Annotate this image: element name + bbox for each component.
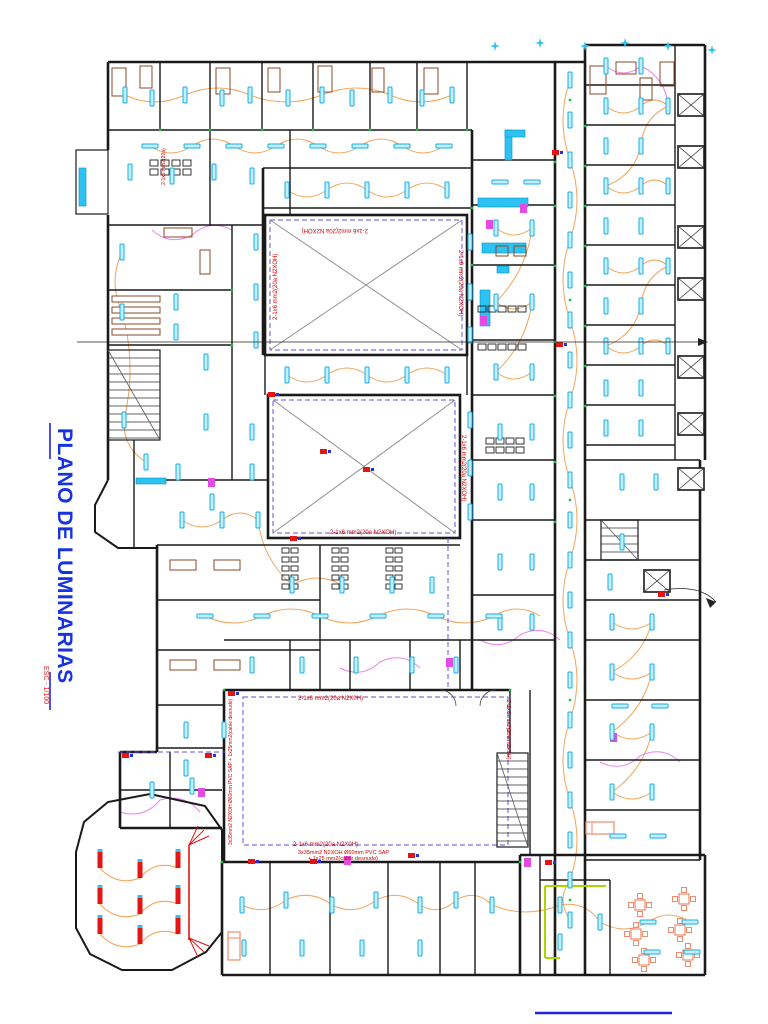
circuit-label: 2-1x6 mm2(20a) (161, 148, 167, 185)
light-fixture (454, 892, 458, 908)
switch-dot (584, 245, 586, 247)
light-fixture (530, 484, 534, 500)
ceiling-marker-diamond (707, 45, 717, 55)
shaft-box (644, 570, 670, 592)
light-fixture (290, 577, 294, 593)
switch-dot (471, 264, 473, 266)
ceiling-marker-diamond (490, 41, 500, 51)
light-fixture (598, 914, 602, 930)
switch-dot (584, 325, 586, 327)
shelf (112, 318, 160, 324)
light-fixture (180, 512, 184, 528)
circuit-label: 2-1x6 mm2(20a N2XOH) (302, 227, 368, 233)
counter-cyan (497, 266, 509, 273)
light-fixture (418, 897, 422, 913)
light-fixture (530, 554, 534, 570)
light-fixture (604, 178, 608, 194)
furniture (214, 560, 240, 570)
chair (643, 932, 648, 937)
chair (395, 584, 402, 589)
light-fixture (174, 324, 178, 340)
light-fixture (682, 920, 698, 924)
light-fixture (254, 614, 270, 618)
magenta-fixture (486, 220, 493, 229)
stage-curtain-line (189, 830, 204, 845)
ceiling-marker-diamond (535, 38, 545, 48)
switch-dot (554, 205, 556, 207)
chair (386, 548, 393, 553)
switch-dot (584, 165, 586, 167)
light-fixture (486, 614, 502, 618)
light-fixture (568, 112, 572, 128)
light-fixture (436, 144, 452, 148)
section-arrowhead (706, 598, 716, 608)
switch-dot (223, 689, 225, 691)
light-fixture (666, 338, 670, 354)
wiring-circuit-magenta (480, 630, 560, 644)
chair (386, 557, 393, 562)
light-fixture (468, 234, 472, 250)
shaft-box (678, 94, 704, 116)
circuit-label: 2-1x6 mm2(20a N2X0H) (298, 696, 363, 702)
light-fixture (170, 168, 174, 184)
counter-cyan (136, 478, 166, 484)
electrical-panel (552, 150, 563, 155)
chair (332, 575, 339, 580)
light-fixture (285, 182, 289, 198)
light-fixture (410, 657, 414, 673)
switch-dot (261, 129, 263, 131)
chair (691, 897, 696, 902)
light-fixture (666, 178, 670, 194)
switch-dot (584, 405, 586, 407)
circuit-label: 2-1x6 mm2(20a N2X0H) (293, 842, 358, 848)
plan-title: PLANO DE LUMINARIAS (53, 428, 76, 684)
light-fixture (226, 144, 242, 148)
wiring-circuit-magenta (120, 798, 200, 814)
switch-dot (509, 689, 511, 691)
light-fixture (300, 940, 304, 956)
light-fixture (530, 614, 534, 630)
light-fixture (330, 897, 334, 913)
light-fixture (568, 872, 572, 888)
panel-flag (416, 854, 419, 857)
chair (486, 447, 494, 453)
drawing-sheet: 2-1x6 mm2(20a N2XOH)2-1x6 mm2(20a N2XOH)… (0, 0, 768, 1024)
light-fixture (604, 218, 608, 234)
emergency-light-fixture (176, 849, 181, 868)
shelf (112, 307, 160, 313)
light-fixture (184, 760, 188, 776)
light-fixture (184, 722, 188, 738)
panel-flag (213, 754, 216, 757)
light-fixture (568, 72, 572, 88)
light-fixture (120, 244, 124, 260)
dining-table (625, 923, 648, 946)
chair (647, 903, 652, 908)
chair (629, 903, 634, 908)
chair (673, 897, 678, 902)
light-fixture (494, 220, 498, 236)
chair (172, 160, 180, 166)
furniture (200, 250, 210, 274)
switch-dot (554, 521, 556, 523)
light-fixture (558, 897, 562, 913)
chair (677, 953, 682, 958)
light-fixture (325, 182, 329, 198)
light-fixture (325, 367, 329, 383)
light-fixture (418, 940, 422, 956)
dining-table (673, 888, 696, 911)
light-fixture (666, 98, 670, 114)
dining-table (677, 944, 700, 967)
light-fixture (150, 782, 154, 798)
door-swing (440, 690, 456, 706)
emergency-light-fixture (176, 915, 181, 934)
switch-dot (569, 899, 571, 901)
light-fixture (248, 87, 252, 103)
light-fixture (430, 577, 434, 593)
chair (687, 928, 692, 933)
chair (341, 566, 348, 571)
switch-dot (554, 461, 556, 463)
emergency-light-fixture (138, 895, 143, 914)
switch-dot (584, 365, 586, 367)
light-fixture (568, 552, 572, 568)
chair (395, 566, 402, 571)
light-fixture (176, 464, 180, 480)
light-fixture (568, 352, 572, 368)
ceiling-marker-diamond (663, 41, 673, 51)
chair (395, 557, 402, 562)
light-fixture (644, 950, 660, 954)
electrical-panel (122, 753, 133, 758)
switch-dot (569, 99, 571, 101)
shelf (112, 329, 160, 335)
light-fixture (530, 220, 534, 236)
light-fixture (604, 338, 608, 354)
panel-flag (298, 537, 301, 540)
chair (332, 584, 339, 589)
light-fixture (654, 474, 658, 490)
panel-flag (553, 861, 556, 864)
light-fixture (530, 424, 534, 440)
panel-flag (328, 450, 331, 453)
circuit-label: 2-1x6 mm2(20a N2X0H) (505, 700, 511, 760)
light-fixture (320, 87, 324, 103)
light-fixture (220, 90, 224, 106)
chair (686, 944, 691, 949)
chair (488, 344, 496, 350)
counter-cyan (505, 130, 525, 137)
circuit-label: + 1x25 mm2(cable desnudo) (308, 856, 378, 862)
light-fixture (650, 664, 654, 680)
furniture (170, 560, 196, 570)
light-fixture (370, 614, 386, 618)
light-fixture (640, 920, 656, 924)
light-fixture (352, 144, 368, 148)
auditorium-outline (76, 794, 222, 970)
circuit-label: 2-1x6 mm2(20a N2XOH) (460, 435, 466, 501)
emergency-light-fixture (176, 885, 181, 904)
magenta-fixture (480, 316, 487, 325)
light-fixture (220, 512, 224, 528)
chair (686, 962, 691, 967)
light-fixture (494, 364, 498, 380)
light-fixture (490, 897, 494, 913)
magenta-fixture (524, 858, 531, 867)
light-fixture (604, 258, 608, 274)
light-fixture (610, 784, 614, 800)
light-fixture (254, 234, 258, 250)
bed (228, 932, 240, 960)
light-fixture (666, 258, 670, 274)
light-fixture (639, 138, 643, 154)
courtyard (268, 395, 460, 538)
light-fixture (405, 182, 409, 198)
chair (638, 894, 643, 899)
panel-flag (256, 860, 259, 863)
staircase (108, 350, 160, 440)
shaft-box (678, 413, 704, 435)
light-fixture (340, 577, 344, 593)
light-fixture (128, 164, 132, 180)
chair (642, 967, 647, 972)
light-fixture (468, 412, 472, 428)
furniture (640, 78, 652, 100)
furniture (164, 228, 192, 237)
light-fixture (650, 724, 654, 740)
panel-flag (236, 692, 239, 695)
chair (506, 438, 514, 444)
light-fixture (568, 472, 572, 488)
light-fixture (639, 298, 643, 314)
bed (586, 822, 614, 834)
light-fixture (639, 98, 643, 114)
light-fixture (568, 592, 572, 608)
light-fixture (568, 512, 572, 528)
chair-grid (486, 438, 524, 453)
light-fixture (620, 474, 624, 490)
chair (516, 447, 524, 453)
light-fixture (639, 218, 643, 234)
switch-dot (231, 344, 233, 346)
light-fixture (604, 58, 608, 74)
wiring-circuit (612, 622, 652, 799)
furniture (170, 660, 196, 670)
emergency-light-fixture (98, 915, 103, 934)
chair (291, 548, 298, 553)
light-fixture (639, 338, 643, 354)
light-fixture (286, 90, 290, 106)
light-fixture (608, 574, 612, 590)
furniture (214, 660, 240, 670)
furniture (424, 68, 438, 94)
light-fixture (639, 380, 643, 396)
counter-cyan (79, 168, 86, 206)
chair (634, 941, 639, 946)
courtyard (243, 697, 508, 845)
light-fixture (285, 367, 289, 383)
electrical-panel (205, 753, 216, 758)
light-fixture (183, 87, 187, 103)
circuit-label: 2-1x6 mm2(20a N2XOH) (330, 530, 396, 536)
circuit-label: 3x35mm2 N2XOH Ø60mm PVC SAP + 1x25mm2(ca… (228, 698, 234, 845)
chair (291, 566, 298, 571)
light-fixture (250, 464, 254, 480)
chair (183, 169, 191, 175)
light-fixture (468, 460, 472, 476)
switch-dot (466, 129, 468, 131)
light-fixture (530, 294, 534, 310)
shaft-box (678, 468, 704, 490)
light-fixture (568, 792, 572, 808)
emergency-light-fixture (138, 859, 143, 878)
chair (678, 937, 683, 942)
light-fixture (468, 284, 472, 300)
counter-cyan (482, 243, 526, 253)
panel-flag (666, 593, 669, 596)
chair (282, 584, 289, 589)
wiring-circuit (115, 252, 146, 462)
electrical-panel (228, 691, 239, 696)
magenta-fixture (198, 788, 205, 797)
plan-scale-label: ESC - 1/100 (42, 666, 49, 704)
furniture (372, 68, 384, 92)
chair (183, 160, 191, 166)
light-fixture (568, 312, 572, 328)
light-fixture (144, 454, 148, 470)
chair (478, 344, 486, 350)
light-fixture (374, 892, 378, 908)
light-fixture (530, 364, 534, 380)
chair (150, 160, 158, 166)
light-fixture (174, 294, 178, 310)
light-fixture (568, 712, 572, 728)
chair (682, 906, 687, 911)
light-fixture (468, 504, 472, 520)
wiring-circuit-magenta (340, 658, 420, 672)
stage (189, 826, 209, 957)
light-fixture (300, 657, 304, 673)
switch-dot (312, 129, 314, 131)
light-fixture (610, 614, 614, 630)
light-fixture (639, 420, 643, 436)
light-fixture (639, 58, 643, 74)
switch-dot (569, 299, 571, 301)
wiring-circuit (242, 895, 690, 929)
circuit-label: 2-1x6 mm2(20a N2XOH) (457, 250, 463, 316)
emergency-light-fixture (98, 849, 103, 868)
chair (341, 548, 348, 553)
light-fixture (390, 577, 394, 593)
chair (332, 566, 339, 571)
light-fixture (568, 632, 572, 648)
shaft-box (678, 146, 704, 168)
light-fixture (610, 664, 614, 680)
light-fixture (498, 484, 502, 500)
light-fixture (652, 704, 668, 708)
light-fixture (142, 144, 158, 148)
light-fixture (498, 424, 502, 440)
light-fixture (524, 180, 540, 184)
switch-dot (584, 125, 586, 127)
switch-dot (519, 861, 521, 863)
switch-dot (221, 861, 223, 863)
light-fixture (350, 90, 354, 106)
wiring-circuit-magenta (600, 752, 680, 766)
light-fixture (604, 298, 608, 314)
floor-plan-canvas: 2-1x6 mm2(20a N2XOH)2-1x6 mm2(20a N2XOH)… (0, 0, 768, 1024)
light-fixture (204, 354, 208, 370)
shaft-box (678, 226, 704, 248)
light-fixture (204, 414, 208, 430)
light-fixture (568, 192, 572, 208)
light-fixture (610, 724, 614, 740)
panel-flag (276, 393, 279, 396)
light-fixture (240, 897, 244, 913)
light-fixture (254, 332, 258, 348)
light-fixture (222, 722, 226, 738)
switch-dot (554, 161, 556, 163)
light-fixture (354, 657, 358, 673)
chair (682, 888, 687, 893)
light-fixture (428, 614, 444, 618)
chair (516, 438, 524, 444)
switch-dot (369, 129, 371, 131)
switch-dot (416, 129, 418, 131)
stage-curtain-line (189, 938, 204, 952)
chair (282, 557, 289, 562)
chair (633, 958, 638, 963)
light-fixture (394, 144, 410, 148)
light-fixture (612, 704, 628, 708)
chair (395, 548, 402, 553)
light-fixture (254, 284, 258, 300)
switch-dot (209, 129, 211, 131)
chair (341, 557, 348, 562)
chair (496, 447, 504, 453)
light-fixture (123, 87, 127, 103)
light-fixture (650, 834, 666, 838)
shelf (112, 296, 160, 302)
light-fixture (604, 138, 608, 154)
light-fixture (365, 182, 369, 198)
switch-dot (471, 207, 473, 209)
ceiling-marker-diamond (580, 41, 590, 51)
switch-dot (554, 395, 556, 397)
light-fixture (604, 420, 608, 436)
light-fixture (568, 152, 572, 168)
switch-dot (231, 289, 233, 291)
shaft-box (678, 356, 704, 378)
light-fixture (492, 180, 508, 184)
light-fixture (650, 614, 654, 630)
switch-dot (584, 205, 586, 207)
light-fixture (210, 494, 214, 510)
chair (282, 566, 289, 571)
light-fixture (650, 784, 654, 800)
emergency-light-fixture (138, 925, 143, 944)
staircase (497, 753, 528, 847)
light-fixture (468, 327, 472, 343)
chair-grid (478, 344, 526, 350)
panel-flag (560, 151, 563, 154)
wiring-circuit (606, 260, 668, 353)
chair (486, 438, 494, 444)
chair (332, 557, 339, 562)
switch-dot (159, 129, 161, 131)
